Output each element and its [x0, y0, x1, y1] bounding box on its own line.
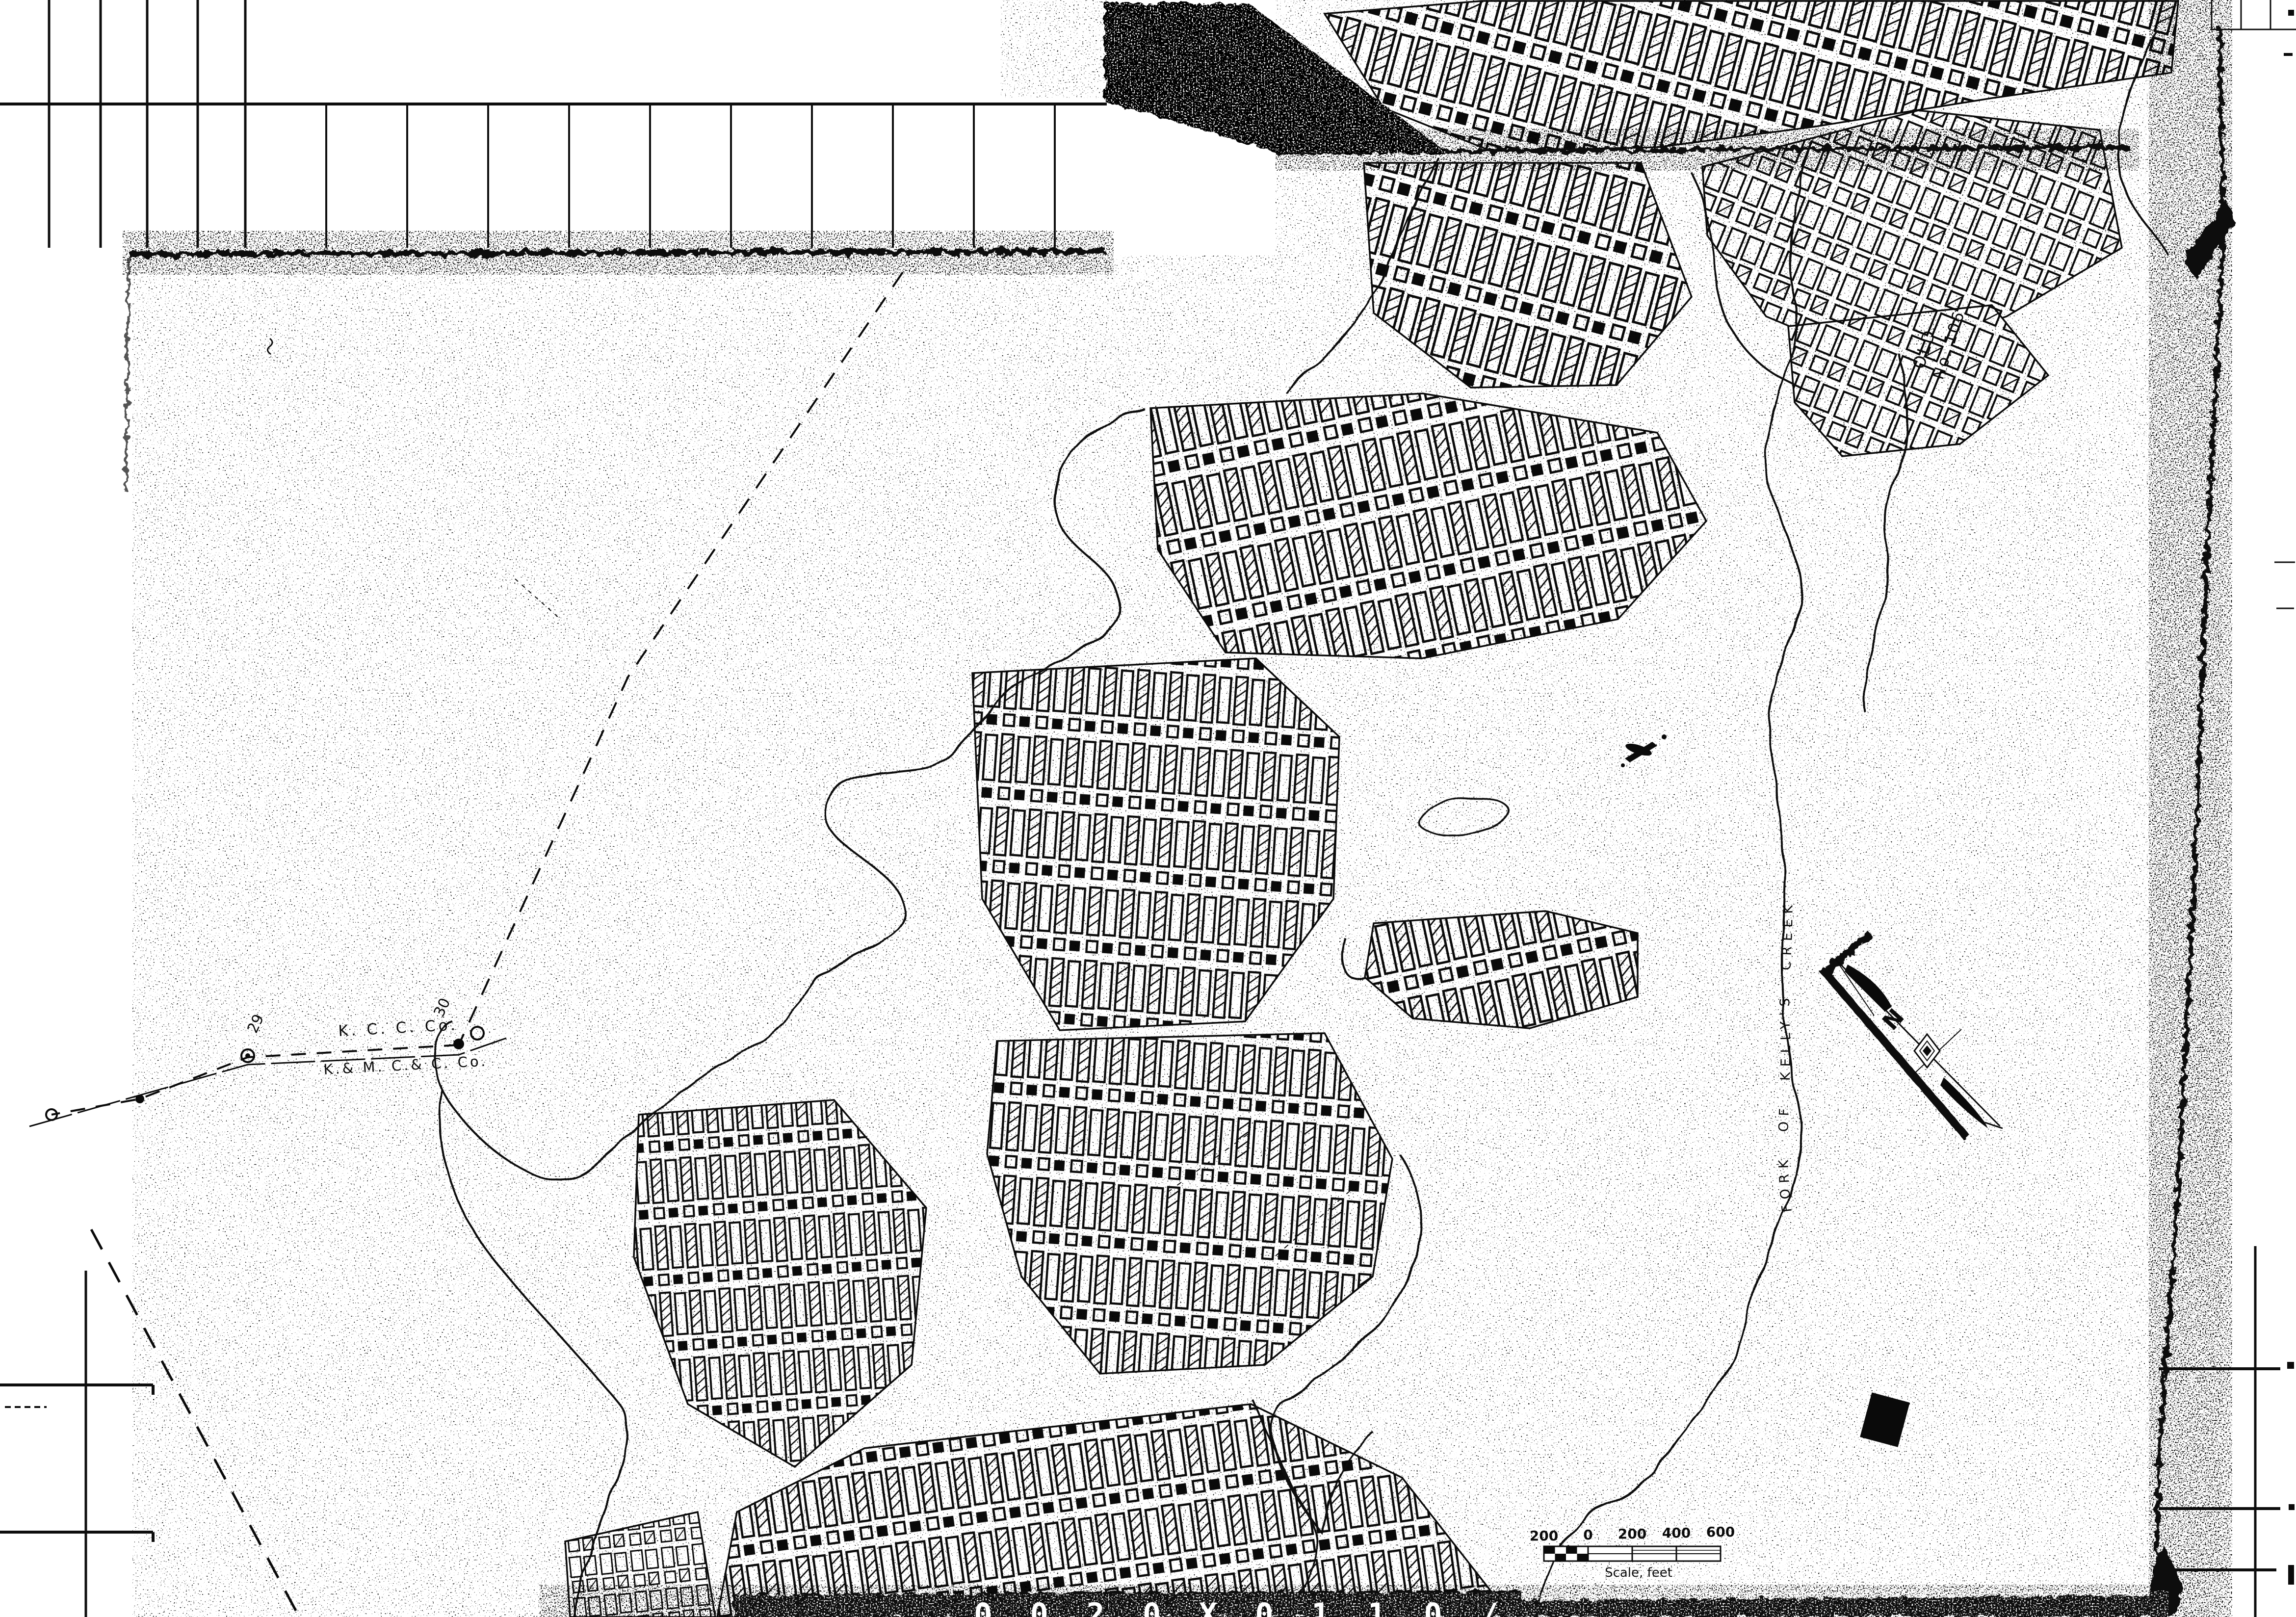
scale-tick-4: 600	[1706, 1524, 1735, 1540]
sheet-top-edge	[129, 251, 1106, 254]
mine-map-scan: 29 30 K. C. C. Co. K.& M. C.& C. Co.	[0, 0, 2296, 1617]
ink-dot-1	[1662, 734, 1667, 739]
bottom-stamp-text: 0 0 2 0 X 0 1 1 0 /	[974, 1596, 1508, 1617]
scanned-mine-map-page: 29 30 K. C. C. Co. K.& M. C.& C. Co.	[0, 0, 2296, 1617]
noise-upper-sheet	[1276, 0, 2232, 255]
scale-tick-3: 400	[1662, 1525, 1691, 1541]
title-band: 0 0 2 0 X 0 1 1 0 /	[733, 1591, 2168, 1617]
ink-dot-2	[1621, 763, 1625, 767]
scale-bar-body	[1544, 1546, 1721, 1561]
scale-tick-0: 200	[1530, 1528, 1558, 1544]
scale-tick-2: 200	[1618, 1526, 1646, 1542]
scale-tick-1: 0	[1583, 1527, 1592, 1543]
noise-sheet	[132, 255, 2222, 1617]
noise-wedge-halo	[1001, 0, 1106, 98]
scale-caption: Scale, feet	[1605, 1565, 1672, 1580]
